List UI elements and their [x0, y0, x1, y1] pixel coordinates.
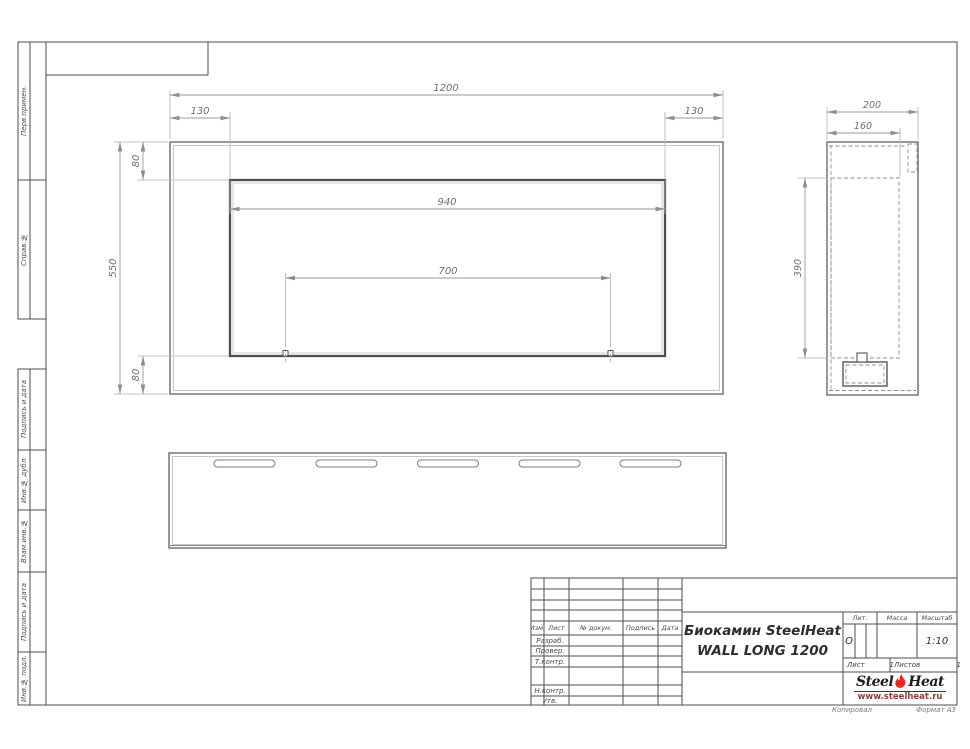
role-approved: Утв. [531, 696, 569, 705]
dim-depth: 200 [863, 100, 881, 111]
side-stamp-repl-inv: Взам.инв.№ [18, 510, 30, 572]
logo-word-steel: Steel [856, 674, 893, 690]
document-title-line2: WALL LONG 1200 [697, 642, 828, 662]
col-header-list: Лист [544, 621, 569, 635]
dim-top-offset: 80 [131, 155, 142, 168]
bottom-view [169, 453, 726, 548]
vent-slot-3 [418, 460, 479, 467]
dim-right-inset: 130 [684, 106, 703, 117]
sheets-label: Листов [894, 661, 920, 669]
side-stamp-inv-dupl: Инв.№ дубл. [18, 450, 30, 510]
side-chamber-hidden [831, 178, 899, 358]
sheets-value: 1 [957, 661, 961, 669]
front-dimensions: 1200 130 130 940 700 550 80 80 [108, 83, 723, 394]
dim-overall-width: 1200 [433, 83, 458, 94]
vent-slot-5 [620, 460, 681, 467]
role-tcontrol: Т.контр. [531, 656, 569, 667]
sheet-label: Лист [847, 661, 865, 669]
side-stamp-inv-orig: Инв.№ подл. [18, 652, 30, 705]
side-burner-box [843, 362, 887, 386]
side-stamp-sign-date-2: Подпись и дата [18, 572, 30, 652]
side-bracket-hidden [908, 144, 917, 172]
col-header-date: Дата [658, 621, 682, 635]
scale-header: Масштаб [917, 612, 957, 624]
drawing-sheet: 1200 130 130 940 700 550 80 80 [0, 0, 970, 749]
dim-opening-width: 940 [437, 197, 456, 208]
role-checked: Провер. [531, 646, 569, 656]
logo-website: www.steelheat.ru [858, 692, 943, 702]
dim-left-inset: 130 [190, 106, 209, 117]
role-developed: Разраб. [531, 635, 569, 646]
document-title-line1: Биокамин SteelHeat [684, 622, 841, 642]
sheets-cell: Листов 1 [890, 658, 965, 672]
logo-word-heat: Heat [908, 674, 944, 690]
side-stamp-first-use: Перв.примен. [18, 42, 30, 180]
dim-bottom-offset: 80 [131, 369, 142, 382]
side-view [827, 142, 918, 395]
steelheat-logo-wordmark: Steel Heat [854, 674, 946, 692]
dim-overall-height: 550 [108, 258, 119, 277]
vent-slot-1 [214, 460, 275, 467]
side-stamp-ref-number: Справ.№ [18, 180, 30, 319]
dim-mount-spacing: 700 [438, 266, 457, 277]
lit-value: О [843, 624, 855, 658]
format-note: Формат А3 [906, 706, 966, 714]
scale-value: 1:10 [917, 624, 957, 658]
col-header-izm: Изм. [531, 621, 544, 635]
vent-slot-2 [316, 460, 377, 467]
role-ncontrol: Н.контр. [531, 685, 569, 696]
steelheat-logo: Steel Heat www.steelheat.ru [844, 672, 956, 704]
col-header-doc: № докум. [569, 621, 623, 635]
lit-header: Лит. [843, 612, 877, 624]
side-stamp-sign-date-1: Подпись и дата [18, 369, 30, 450]
col-header-sign: Подпись [623, 621, 658, 635]
mass-header: Масса [877, 612, 917, 624]
vent-slot-4 [519, 460, 580, 467]
copied-by-note: Копировал [807, 706, 897, 714]
side-burner-tab [857, 353, 867, 362]
dim-inner-depth: 160 [854, 121, 872, 132]
document-title: Биокамин SteelHeat WALL LONG 1200 [683, 613, 842, 671]
dim-opening-height: 390 [793, 259, 804, 277]
flame-icon [894, 674, 907, 689]
